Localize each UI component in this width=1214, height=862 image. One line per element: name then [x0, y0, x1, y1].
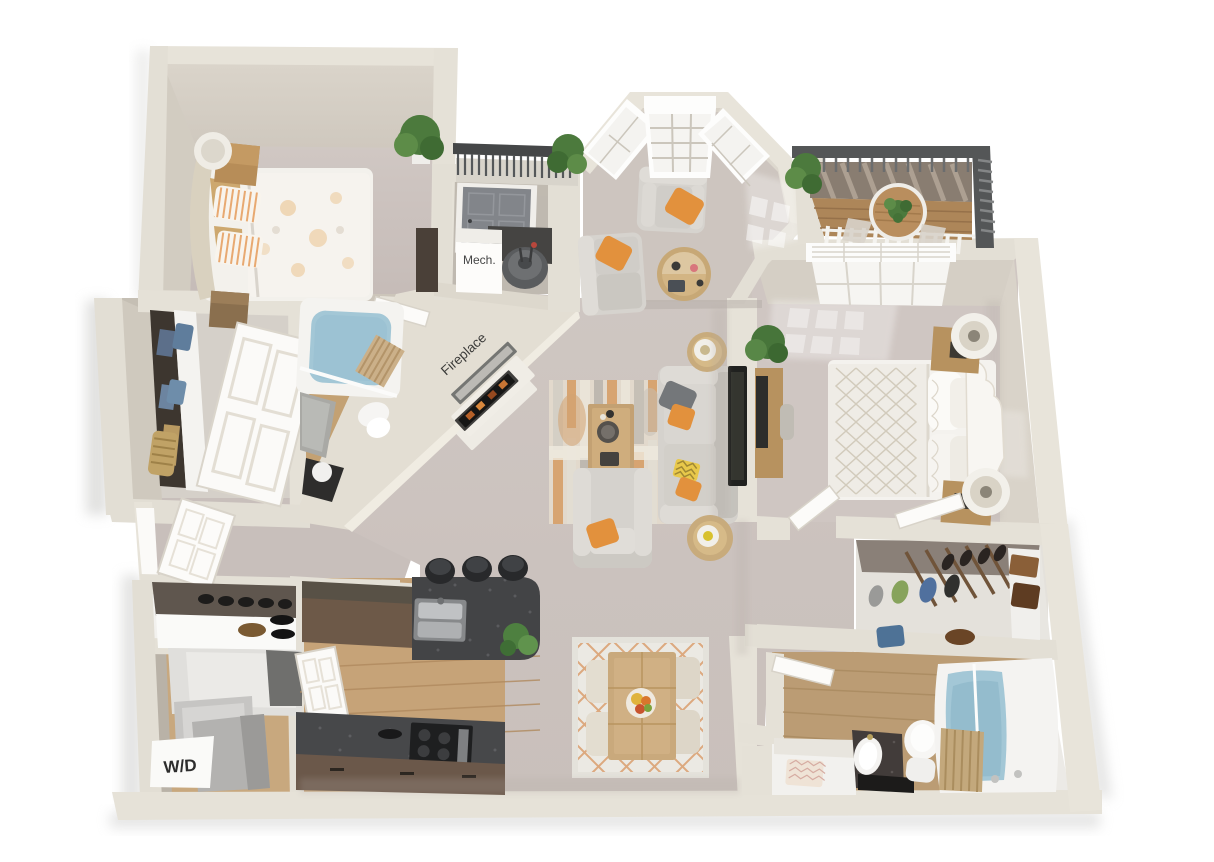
svg-text:W/D: W/D	[163, 756, 197, 777]
svg-text:Mech.: Mech.	[463, 253, 496, 267]
